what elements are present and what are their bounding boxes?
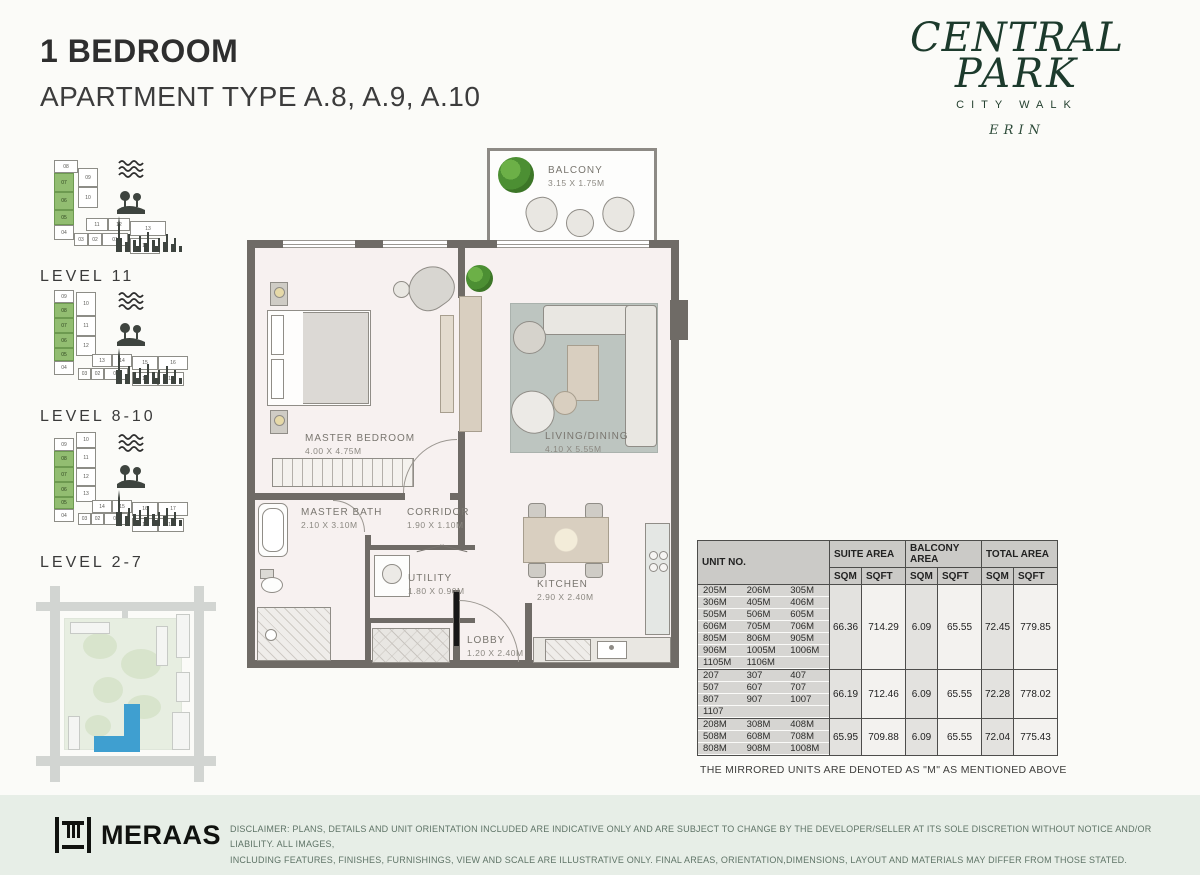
- entry-tiles: [372, 628, 450, 663]
- keyplan-level-1: 091008071106120504131415160302011817 LEV…: [40, 290, 240, 426]
- bathtub-inner: [262, 508, 284, 552]
- area-value: 66.36: [830, 585, 862, 670]
- area-value: 709.88: [862, 719, 906, 756]
- disclaimer-text: DISCLAIMER: PLANS, DETAILS AND UNIT ORIE…: [230, 822, 1180, 868]
- page-title: 1 BEDROOM: [40, 33, 480, 70]
- keyplan-unit-06: 06: [54, 333, 74, 348]
- page-title-block: 1 BEDROOM APARTMENT TYPE A.8, A.9, A.10: [40, 33, 480, 113]
- keyplan-unit-03: 03: [78, 513, 91, 525]
- subcol-sqft: SQFT: [938, 568, 982, 585]
- unit-row: 505M506M605M: [698, 609, 829, 621]
- mirrored-units-note: THE MIRRORED UNITS ARE DENOTED AS "M" AS…: [700, 764, 1067, 776]
- site-location-map: [36, 586, 216, 782]
- duvet: [303, 312, 369, 404]
- room-dims: 4.10 X 5.55M: [545, 444, 629, 454]
- unit-row: 805M806M905M: [698, 633, 829, 645]
- floor-plan: BALCONY 3.15 X 1.75M MASTER BEDROOM 4.00…: [245, 145, 690, 673]
- skyline-icon: [114, 490, 184, 526]
- area-value: 72.28: [982, 670, 1014, 719]
- media-unit: [440, 315, 454, 413]
- subcol-sqm: SQM: [830, 568, 862, 585]
- keyplan-unit-11: 11: [76, 448, 96, 468]
- pillow: [271, 359, 284, 399]
- keyplan-unit-08: 08: [54, 451, 74, 467]
- disclaimer-line-2: INCLUDING FEATURES, FINISHES, FURNISHING…: [230, 853, 1180, 868]
- room-name: KITCHEN: [537, 579, 594, 590]
- keyplan-unit-06: 06: [54, 482, 74, 497]
- unit-row: 208M308M408M: [698, 719, 829, 731]
- wardrobe: [272, 458, 414, 487]
- keyplan-unit-09: 09: [54, 290, 74, 303]
- kitchen-label: KITCHEN 2.90 X 2.40M: [537, 579, 594, 602]
- area-value: 712.46: [862, 670, 906, 719]
- room-name: MASTER BATH: [301, 507, 382, 518]
- plant-icon: [466, 265, 493, 292]
- master-bath-label: MASTER BATH 2.10 X 3.10M: [301, 507, 382, 530]
- subcol-sqm: SQM: [982, 568, 1014, 585]
- keyplan-unit-10: 10: [76, 432, 96, 448]
- unit-row: 1107: [698, 706, 829, 718]
- keyplan-unit-02: 02: [91, 513, 104, 525]
- pouf: [553, 391, 577, 415]
- keyplan-level-0: 0809071006050411121303020114 LEVEL 11: [40, 158, 240, 286]
- unit-numbers-group-2: 208M308M408M508M608M708M808M908M1008M: [698, 719, 830, 756]
- unit-row: 205M206M305M: [698, 585, 829, 597]
- unit-numbers-group-0: 205M206M305M306M405M406M505M506M605M606M…: [698, 585, 830, 670]
- area-value: 66.19: [830, 670, 862, 719]
- waves-icon: [118, 290, 144, 312]
- keyplan-unit-02: 02: [88, 233, 102, 246]
- keyplan-unit-05: 05: [54, 348, 74, 361]
- kitchen-counter-right: [645, 523, 670, 635]
- area-value: 6.09: [906, 719, 938, 756]
- logo-central: CENTRAL: [902, 22, 1132, 55]
- balcony-chair: [521, 193, 563, 236]
- keyplan-unit-05: 05: [54, 497, 74, 509]
- unit-area-table: UNIT NO. SUITE AREA BALCONY AREA TOTAL A…: [697, 540, 1058, 756]
- stove-burner: [659, 551, 668, 560]
- room-name: MASTER BEDROOM: [305, 433, 415, 444]
- area-value: 779.85: [1014, 585, 1058, 670]
- map-tree-cluster: [85, 715, 111, 737]
- room-dims: 2.90 X 2.40M: [537, 592, 594, 602]
- skyline-icon: [114, 216, 184, 252]
- shower-drain: [265, 629, 277, 641]
- counter-hatch: [545, 639, 591, 661]
- col-total-area: TOTAL AREA: [982, 541, 1058, 568]
- dining-chair: [528, 503, 546, 518]
- room-name: BALCONY: [548, 165, 605, 176]
- map-tree-cluster: [93, 677, 123, 703]
- room-name: LIVING/DINING: [545, 431, 629, 442]
- room-dims: 1.20 X 2.40M: [467, 648, 524, 658]
- balcony-label: BALCONY 3.15 X 1.75M: [548, 165, 605, 188]
- keyplan-unit-03: 03: [74, 233, 88, 246]
- stove-burner: [649, 551, 658, 560]
- area-value: 65.55: [938, 719, 982, 756]
- park-icon: [116, 320, 146, 346]
- unit-row: 306M405M406M: [698, 597, 829, 609]
- park-icon: [116, 188, 146, 214]
- area-value: 714.29: [862, 585, 906, 670]
- room-dims: 3.15 X 1.75M: [548, 178, 605, 188]
- kitchen-sink: [597, 641, 627, 659]
- keyplan-unit-02: 02: [91, 368, 104, 380]
- keyplan-unit-03: 03: [78, 368, 91, 380]
- subcol-sqm: SQM: [906, 568, 938, 585]
- toilet: [261, 577, 283, 593]
- interior-wall: [365, 623, 371, 665]
- unit-row: 906M1005M1006M: [698, 645, 829, 657]
- unit-row: 808M908M1008M: [698, 743, 829, 755]
- ac-ledge: [670, 300, 688, 340]
- utility-wall: [365, 545, 370, 623]
- disclaimer-line-1: DISCLAIMER: PLANS, DETAILS AND UNIT ORIE…: [230, 822, 1180, 853]
- map-road: [50, 586, 60, 782]
- keyplan-unit-14: 14: [92, 500, 112, 513]
- room-dims: 4.00 X 4.75M: [305, 446, 415, 456]
- keyplan-unit-04: 04: [54, 225, 74, 240]
- meraas-wordmark: MERAAS: [101, 820, 221, 851]
- waves-icon: [118, 158, 144, 180]
- room-name: CORRIDOR: [407, 507, 469, 518]
- keyplan-unit-10: 10: [76, 292, 96, 316]
- pillow: [271, 315, 284, 355]
- central-park-logo: CENTRAL PARK CITY WALK ERIN: [902, 22, 1132, 138]
- keyplan-unit-07: 07: [54, 318, 74, 333]
- meraas-logo: MERAAS: [55, 817, 221, 853]
- keyplan-level-2: 10090811071206130504141516170302011918 L…: [40, 432, 240, 572]
- interior-wall: [458, 246, 465, 298]
- waves-icon: [118, 432, 144, 454]
- keyplan-unit-08: 08: [54, 160, 78, 173]
- dining-table: [523, 517, 609, 563]
- master-bedroom-label: MASTER BEDROOM 4.00 X 4.75M: [305, 433, 415, 456]
- map-building: [176, 614, 190, 658]
- map-highlighted-building: [94, 736, 140, 752]
- keyplan-unit-08: 08: [54, 303, 74, 318]
- plant-icon: [498, 157, 534, 193]
- area-value: 72.04: [982, 719, 1014, 756]
- area-value: 65.55: [938, 585, 982, 670]
- keyplan-unit-12: 12: [76, 468, 96, 486]
- dining-chair: [585, 503, 603, 518]
- logo-citywalk: CITY WALK: [902, 99, 1132, 111]
- area-value: 6.09: [906, 670, 938, 719]
- balcony-slider-window: [497, 240, 649, 248]
- level-label: LEVEL 2-7: [40, 554, 144, 572]
- keyplan-unit-10: 10: [78, 187, 98, 208]
- keyplan-unit-04: 04: [54, 509, 74, 522]
- keyplan-unit-13: 13: [92, 354, 112, 367]
- map-tree-cluster: [121, 649, 161, 679]
- skyline-icon: [114, 348, 184, 384]
- corridor-label: CORRIDOR 1.90 X 1.10M: [407, 507, 469, 530]
- area-value: 72.45: [982, 585, 1014, 670]
- keyplan-unit-06: 06: [54, 192, 74, 210]
- window: [383, 240, 447, 248]
- stove-burner: [659, 563, 668, 572]
- keyplan-unit-09: 09: [54, 438, 74, 451]
- dining-chair: [585, 563, 603, 578]
- area-value: 6.09: [906, 585, 938, 670]
- keyplan-unit-04: 04: [54, 361, 74, 375]
- col-suite-area: SUITE AREA: [830, 541, 906, 568]
- room-name: LOBBY: [467, 635, 524, 646]
- area-value: 778.02: [1014, 670, 1058, 719]
- unit-row: 8079071007: [698, 694, 829, 706]
- map-tree-cluster: [83, 633, 117, 659]
- subcol-sqft: SQFT: [1014, 568, 1058, 585]
- room-dims: 2.10 X 3.10M: [301, 520, 382, 530]
- unit-row: 1105M1106M: [698, 657, 829, 669]
- keyplan-unit-05: 05: [54, 210, 74, 225]
- unit-row: 507607707: [698, 682, 829, 694]
- lamp: [274, 415, 285, 426]
- subcol-sqft: SQFT: [862, 568, 906, 585]
- area-value: 65.95: [830, 719, 862, 756]
- map-building: [68, 716, 80, 750]
- window: [283, 240, 355, 248]
- tv-console: [459, 296, 482, 432]
- logo-erin: ERIN: [902, 123, 1132, 138]
- unit-row: 508M608M708M: [698, 731, 829, 743]
- map-building: [70, 622, 110, 634]
- park-icon: [116, 462, 146, 488]
- round-side-table: [513, 321, 546, 354]
- col-unit-no: UNIT NO.: [698, 541, 830, 585]
- washing-machine-door: [382, 564, 402, 584]
- lobby-label: LOBBY 1.20 X 2.40M: [467, 635, 524, 658]
- map-building: [156, 626, 168, 666]
- interior-wall: [458, 431, 465, 497]
- map-road: [194, 586, 204, 782]
- col-balcony-area: BALCONY AREA: [906, 541, 982, 568]
- brochure-page: { "header": { "title": "1 BEDROOM", "sub…: [0, 0, 1200, 875]
- unit-row: 207307407: [698, 670, 829, 682]
- meraas-icon: [55, 817, 91, 853]
- balcony-chair: [597, 193, 639, 236]
- interior-wall: [253, 493, 405, 500]
- keyplan-unit-09: 09: [78, 168, 98, 187]
- footer-bar: MERAAS DISCLAIMER: PLANS, DETAILS AND UN…: [0, 795, 1200, 875]
- area-value: 775.43: [1014, 719, 1058, 756]
- map-building: [172, 712, 190, 750]
- map-building: [176, 672, 190, 702]
- living-dining-label: LIVING/DINING 4.10 X 5.55M: [545, 431, 629, 454]
- keyplan-unit-07: 07: [54, 173, 74, 192]
- room-dims: 1.90 X 1.10M: [407, 520, 469, 530]
- sofa-right: [625, 305, 657, 447]
- level-label: LEVEL 8-10: [40, 408, 156, 426]
- room-name: UTILITY: [408, 573, 465, 584]
- unit-row: 606M705M706M: [698, 621, 829, 633]
- dining-chair: [528, 563, 546, 578]
- lamp: [274, 287, 285, 298]
- keyplan-unit-11: 11: [86, 218, 108, 231]
- level-label: LEVEL 11: [40, 268, 134, 286]
- map-road: [36, 756, 216, 766]
- page-subtitle: APARTMENT TYPE A.8, A.9, A.10: [40, 81, 480, 113]
- stove-burner: [649, 563, 658, 572]
- balcony-area: BALCONY 3.15 X 1.75M: [487, 148, 657, 243]
- area-value: 65.55: [938, 670, 982, 719]
- keyplan-unit-12: 12: [76, 336, 96, 356]
- balcony-table: [566, 209, 594, 237]
- keyplan-unit-11: 11: [76, 316, 96, 336]
- unit-numbers-group-1: 20730740750760770780790710071107: [698, 670, 830, 719]
- interior-wall: [525, 603, 532, 666]
- faucet: [609, 645, 614, 650]
- keyplan-unit-07: 07: [54, 467, 74, 482]
